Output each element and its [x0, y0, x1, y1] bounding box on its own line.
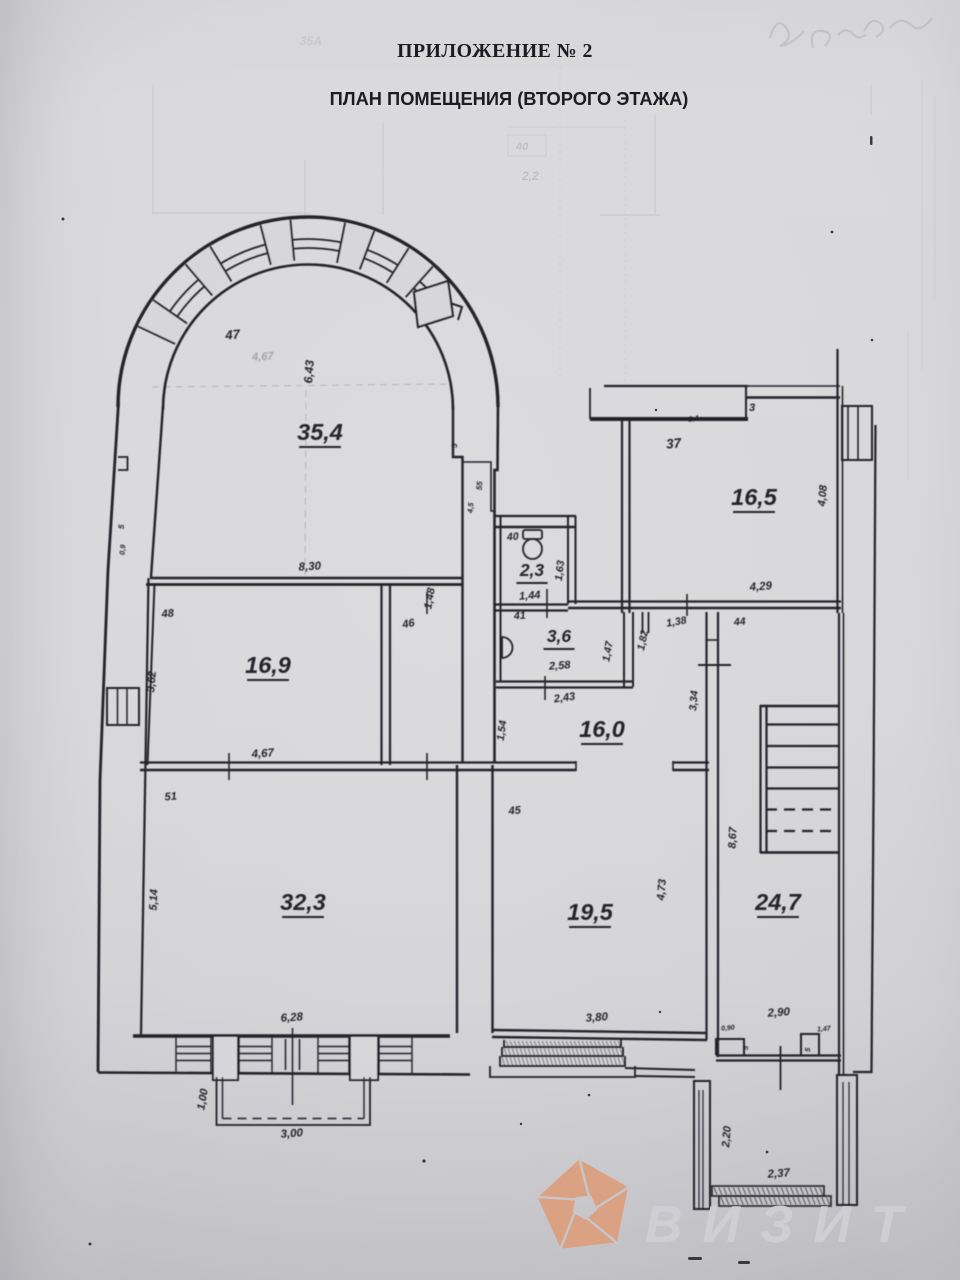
svg-text:47: 47	[224, 326, 241, 342]
svg-text:40: 40	[506, 531, 520, 544]
svg-text:32,3: 32,3	[280, 889, 326, 915]
svg-text:16,9: 16,9	[245, 652, 291, 678]
svg-text:4,67: 4,67	[251, 350, 275, 363]
svg-text:1,63: 1,63	[553, 560, 567, 582]
svg-text:48: 48	[160, 607, 175, 620]
svg-text:ВИЗИТ: ВИЗИТ	[645, 1196, 923, 1254]
svg-text:4,08: 4,08	[816, 484, 830, 508]
svg-text:2,2: 2,2	[521, 169, 539, 183]
svg-text:44: 44	[732, 616, 746, 629]
svg-text:4,67: 4,67	[250, 747, 275, 761]
svg-text:5,14: 5,14	[147, 889, 160, 911]
svg-text:35,4: 35,4	[297, 419, 343, 445]
svg-text:40: 40	[515, 141, 529, 153]
svg-text:8,67: 8,67	[726, 826, 739, 849]
svg-text:ПЛАН ПОМЕЩЕНИЯ (ВТОРОГО ЭТАЖА): ПЛАН ПОМЕЩЕНИЯ (ВТОРОГО ЭТАЖА)	[330, 88, 689, 109]
svg-text:8,30: 8,30	[298, 560, 322, 573]
svg-text:3: 3	[749, 402, 755, 414]
svg-text:1,44: 1,44	[519, 589, 541, 602]
svg-text:3,00: 3,00	[280, 1127, 304, 1141]
svg-text:55: 55	[475, 480, 485, 490]
svg-text:0,90: 0,90	[721, 1025, 735, 1033]
svg-text:ПРИЛОЖЕНИЕ № 2: ПРИЛОЖЕНИЕ № 2	[397, 40, 593, 62]
svg-text:4,29: 4,29	[748, 580, 773, 594]
svg-text:45: 45	[507, 804, 522, 817]
svg-text:4,5: 4,5	[465, 501, 475, 514]
svg-text:2,58: 2,58	[548, 659, 572, 673]
svg-text:0,9: 0,9	[118, 543, 128, 555]
svg-text:19,5: 19,5	[567, 899, 614, 925]
svg-text:41: 41	[513, 610, 527, 623]
svg-text:3,80: 3,80	[585, 1011, 609, 1025]
svg-text:3,6: 3,6	[547, 626, 572, 646]
svg-text:4,73: 4,73	[655, 879, 669, 902]
svg-text:3,34: 3,34	[687, 690, 701, 712]
svg-text:16,5: 16,5	[731, 484, 778, 510]
svg-text:2,90: 2,90	[766, 1006, 791, 1020]
svg-text:35А: 35А	[300, 34, 322, 48]
svg-text:2,3: 2,3	[519, 560, 545, 580]
svg-text:51: 51	[164, 791, 177, 804]
svg-text:37: 37	[665, 435, 683, 451]
svg-text:6,43: 6,43	[301, 359, 317, 384]
svg-text:1,47: 1,47	[817, 1025, 832, 1033]
svg-text:16,0: 16,0	[579, 716, 625, 742]
svg-text:2,20: 2,20	[720, 1125, 734, 1149]
svg-text:6,28: 6,28	[280, 1011, 304, 1025]
svg-text:3,62: 3,62	[145, 671, 159, 693]
svg-text:2,37: 2,37	[766, 1167, 791, 1181]
svg-text:24,7: 24,7	[754, 889, 802, 915]
